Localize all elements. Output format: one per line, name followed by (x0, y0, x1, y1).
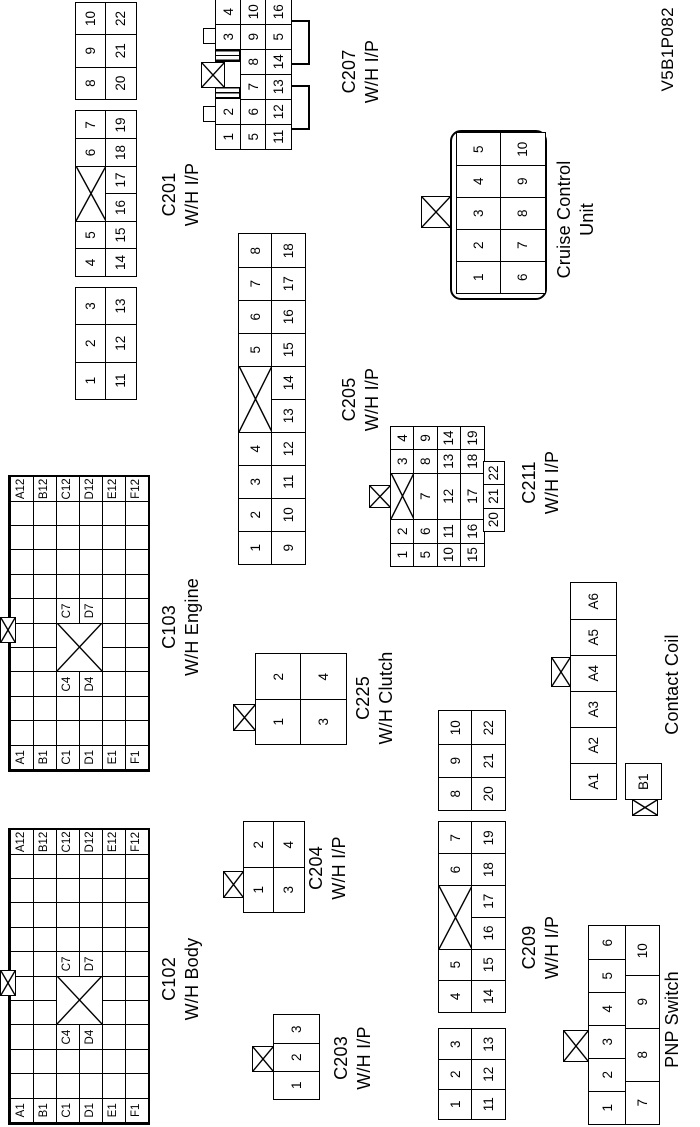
pin-cell: 12 (271, 431, 306, 466)
pin-cell (10, 696, 34, 721)
pin-cell: 5 (456, 132, 502, 166)
mount-hook (290, 85, 310, 130)
connector-c207: 1234567891011121314516 (215, 0, 290, 150)
pin-cell: 12 (437, 472, 462, 520)
pin-cell (102, 951, 126, 976)
pin-cell (10, 1000, 34, 1025)
pin-cell: 19 (105, 110, 137, 139)
pin-cell: 5 (265, 23, 292, 50)
pin-cell: 12 (105, 324, 137, 363)
pin-cell: 19 (471, 821, 506, 854)
pin-cell (33, 696, 57, 721)
pin-cell: 6 (500, 260, 546, 294)
pin-cell (125, 854, 149, 879)
pin-cell: D1 (79, 1098, 103, 1123)
pin-cell: C7 (56, 598, 80, 623)
cross-cell (56, 976, 103, 1026)
pin-cell: 11 (271, 464, 306, 499)
pin-cell (10, 1073, 34, 1098)
pin-cell: 21 (471, 743, 506, 778)
pin-cell (10, 549, 34, 574)
pin-cell (102, 1073, 126, 1098)
pin-cell: 3 (273, 1014, 320, 1044)
pin-cell (125, 671, 149, 696)
pin-cell (79, 549, 103, 574)
pin-cell: 8 (413, 449, 438, 474)
pin-cell: 4 (438, 980, 473, 1013)
pin-cell: 8 (240, 48, 267, 75)
pin-cell (56, 902, 80, 927)
pin-cell (102, 878, 126, 903)
pin-cell (79, 927, 103, 952)
pin-cell: 13 (471, 1028, 506, 1060)
pin-cell: 3 (390, 449, 415, 474)
pin-cell: C1 (56, 745, 80, 770)
pin-cell: 6 (438, 853, 473, 886)
pin-cell: 2 (438, 1058, 473, 1090)
pin-cell (33, 671, 57, 696)
connector-sub: W/H I/P (361, 322, 384, 477)
pin-cell (33, 927, 57, 952)
pin-cell (79, 1073, 103, 1098)
pin-cell: 2 (243, 821, 275, 868)
pin-cell: 17 (105, 165, 137, 194)
pin-cell: 8 (75, 66, 107, 100)
pin-cell (56, 1049, 80, 1074)
pin-cell: 2 (255, 653, 302, 700)
connector-sub: W/H Engine (181, 537, 204, 717)
pin-cell: 16 (265, 0, 292, 25)
pin-cell: 2 (238, 497, 273, 532)
pin-cell (10, 671, 34, 696)
pin-cell: C12 (56, 829, 80, 854)
pin-cell (79, 854, 103, 879)
pin-cell: 15 (460, 542, 485, 567)
connector-c203-label: C203 W/H I/P (330, 999, 376, 1117)
pin-cell: 1 (273, 1070, 320, 1100)
pin-cell (125, 549, 149, 574)
pin-cell (56, 696, 80, 721)
pin-cell: 20 (471, 776, 506, 811)
pin-cell: 8 (500, 196, 546, 230)
pin-cell: 7 (238, 266, 273, 301)
pin-cell: 9 (438, 743, 473, 778)
pin-cell: 10 (437, 542, 462, 567)
connector-cruise-label: Cruise Control Unit (553, 127, 599, 312)
pin-cell: 2 (588, 1057, 627, 1092)
connector-c209-label: C209 W/H I/P (518, 880, 564, 1015)
pin-cell (102, 671, 126, 696)
pin-cell: 17 (460, 472, 485, 520)
pin-cell (56, 720, 80, 745)
pin-cell: 9 (625, 974, 660, 1029)
pin-cell: 6 (238, 299, 273, 334)
pin-cell: D4 (79, 1024, 103, 1049)
pin-cell (33, 902, 57, 927)
connector-name: C102 (158, 889, 181, 1069)
pin-cell: 6 (75, 138, 107, 167)
pin-cell: 22 (483, 461, 505, 486)
pin-cell (33, 647, 57, 672)
keying-x-mark-cruise (421, 196, 451, 228)
pin-cell: 12 (471, 1058, 506, 1090)
pin-cell: 7 (413, 472, 438, 520)
pin-cell (56, 549, 80, 574)
pin-cell: 8 (238, 233, 273, 268)
connector-c207-label: C207 W/H I/P (338, 14, 384, 129)
pin-cell: 1 (456, 260, 502, 294)
pin-cell (10, 501, 34, 526)
pin-cell: A2 (570, 726, 617, 764)
pin-cell: 6 (240, 98, 267, 125)
connector-c225-label: C225 W/H Clutch (352, 637, 398, 759)
pin-cell (102, 647, 126, 672)
pin-cell (33, 951, 57, 976)
pin-cell (33, 1049, 57, 1074)
pin-cell: 22 (471, 710, 506, 745)
pin-cell: 5 (588, 958, 627, 993)
pin-cell: 16 (105, 193, 137, 222)
pin-cell: 13 (437, 449, 462, 474)
pin-cell (79, 696, 103, 721)
pin-cell (102, 1000, 126, 1025)
pin-cell: F12 (125, 829, 149, 854)
pin-cell (10, 878, 34, 903)
pin-cell: E12 (102, 829, 126, 854)
pin-cell: 5 (438, 948, 473, 981)
pin-cell: 3 (438, 1028, 473, 1060)
pin-cell: 13 (265, 73, 292, 100)
pin-cell (102, 976, 126, 1001)
pin-cell: 4 (273, 821, 305, 868)
pin-cell: A4 (570, 654, 617, 692)
pin-cell (56, 574, 80, 599)
pin-cell (102, 1024, 126, 1049)
cross-cell (438, 885, 473, 950)
pin-cell: 1 (255, 698, 302, 745)
pin-cell: A12 (10, 829, 34, 854)
connector-name: Contact Coil (661, 592, 684, 777)
pin-cell: 8 (625, 1027, 660, 1082)
pin-cell (33, 854, 57, 879)
pin-cell: 1 (243, 866, 275, 913)
pin-cell: 9 (240, 23, 267, 50)
connector-c201-label: C201 W/H I/P (158, 102, 204, 287)
pin-cell: A3 (570, 690, 617, 728)
pin-cell (33, 501, 57, 526)
pin-cell: 1 (438, 1088, 473, 1120)
pin-cell: 5 (413, 542, 438, 567)
pin-cell: 1 (390, 542, 415, 567)
pin-cell: B12 (33, 829, 57, 854)
pin-cell: 10 (271, 497, 306, 532)
connector-pnp-label: PNP Switch (661, 937, 684, 1102)
pin-cell: 21 (483, 484, 505, 509)
pin-cell (56, 525, 80, 550)
pin-cell: D12 (79, 476, 103, 501)
pin-cell: 11 (105, 361, 137, 400)
pin-cell (102, 549, 126, 574)
pin-cell (102, 902, 126, 927)
pin-cell: 6 (413, 519, 438, 544)
pin-cell (10, 927, 34, 952)
pin-cell: 9 (500, 164, 546, 198)
pin-cell (125, 501, 149, 526)
pin-cell: 12 (265, 98, 292, 125)
pin-cell: 20 (483, 507, 505, 532)
pin-cell: 14 (105, 248, 137, 277)
pin-cell: 18 (105, 138, 137, 167)
pin-cell (56, 878, 80, 903)
pin-cell: B1 (33, 745, 57, 770)
pin-cell: F12 (125, 476, 149, 501)
pin-cell (10, 525, 34, 550)
pin-cell (33, 976, 57, 1001)
pin-cell (33, 1073, 57, 1098)
pin-cell (102, 501, 126, 526)
keying-x-mark-contact-a (551, 657, 571, 687)
pin-cell (10, 574, 34, 599)
pin-cell: 7 (500, 228, 546, 262)
pin-cell (125, 902, 149, 927)
pin-cell: 18 (471, 853, 506, 886)
pin-cell: 4 (390, 426, 415, 451)
keying-x-mark-pnp (563, 1030, 589, 1062)
pin-cell (33, 720, 57, 745)
pin-cell: 15 (471, 948, 506, 981)
pin-cell (125, 598, 149, 623)
keying-x-mark-c204 (223, 871, 244, 898)
pin-cell: 4 (238, 431, 273, 466)
pin-cell: 22 (105, 2, 137, 36)
pin-cell: C4 (56, 1024, 80, 1049)
connector-sub: W/H I/P (328, 809, 351, 927)
pin-cell (125, 976, 149, 1001)
pin-cell: 11 (437, 519, 462, 544)
pin-cell (56, 854, 80, 879)
pin-cell: 7 (625, 1080, 660, 1125)
pin-cell: 13 (271, 398, 306, 433)
pin-cell (33, 1024, 57, 1049)
pin-cell (102, 623, 126, 648)
pin-cell (125, 720, 149, 745)
pin-cell: 15 (271, 332, 306, 367)
pin-cell: A1 (10, 1098, 34, 1123)
pin-cell: C12 (56, 476, 80, 501)
pin-cell: 21 (105, 34, 137, 68)
pin-cell: 4 (300, 653, 347, 700)
pin-cell (33, 549, 57, 574)
pin-cell (10, 647, 34, 672)
pin-cell: 2 (273, 1042, 320, 1072)
pin-cell (102, 598, 126, 623)
pin-cell: 17 (271, 266, 306, 301)
pin-cell: 17 (471, 885, 506, 918)
connector-name: Cruise Control (553, 127, 576, 312)
pin-cell (10, 1049, 34, 1074)
pin-cell (125, 951, 149, 976)
pin-cell (56, 927, 80, 952)
pin-cell: 3 (273, 866, 305, 913)
pin-cell (33, 878, 57, 903)
pin-cell: 4 (75, 248, 107, 277)
connector-sub: W/H Clutch (375, 637, 398, 759)
connector-sub: W/H I/P (541, 880, 564, 1015)
keying-x-mark-c225 (233, 704, 256, 731)
pin-cell (125, 927, 149, 952)
connector-sub: W/H I/P (353, 999, 376, 1117)
pin-cell: C4 (56, 671, 80, 696)
pin-cell: D12 (79, 829, 103, 854)
pin-cell: 11 (265, 123, 292, 150)
cross-cell (75, 165, 107, 222)
cross-cell (56, 623, 103, 673)
pin-cell: 10 (240, 0, 267, 25)
pin-cell: 6 (588, 925, 627, 960)
connector-sub: W/H I/P (541, 420, 564, 545)
pin-cell (125, 574, 149, 599)
pin-cell: 4 (588, 991, 627, 1026)
connector-c204-label: C204 W/H I/P (305, 809, 351, 927)
pin-cell: 14 (271, 365, 306, 400)
pin-cell (10, 1024, 34, 1049)
pin-cell (79, 878, 103, 903)
connector-name: C211 (518, 420, 541, 545)
connector-name: C209 (518, 880, 541, 1015)
pin-cell: E1 (102, 745, 126, 770)
pin-cell: 10 (75, 2, 107, 36)
keying-x-mark-c103 (0, 617, 16, 643)
pin-cell (56, 501, 80, 526)
pin-cell: B12 (33, 476, 57, 501)
pin-cell (102, 525, 126, 550)
pin-cell: 1 (238, 530, 273, 565)
connector-name: C225 (352, 637, 375, 759)
pin-cell: 20 (105, 66, 137, 100)
keying-x-mark-c203 (252, 1046, 274, 1072)
connector-name: C204 (305, 809, 328, 927)
connector-sub: W/H Body (181, 889, 204, 1069)
pin-cell: 1 (588, 1090, 627, 1125)
pin-cell (33, 623, 57, 648)
pin-cell (102, 720, 126, 745)
pin-cell: A1 (570, 762, 617, 800)
pin-cell: 5 (240, 123, 267, 150)
pin-cell (125, 878, 149, 903)
pin-cell: E12 (102, 476, 126, 501)
pin-cell (102, 1049, 126, 1074)
pin-cell: 1 (75, 361, 107, 400)
pin-cell: 1 (215, 123, 242, 150)
pin-cell: 3 (215, 23, 242, 50)
pin-cell (79, 902, 103, 927)
diagram-page: A1A12B1B12C1C4C7C12D1D4D7D12E1E12F1F12 C… (0, 0, 700, 1127)
pin-cell: 4 (215, 0, 242, 25)
mount-hook (290, 20, 310, 65)
pin-cell (79, 574, 103, 599)
pin-cell: D1 (79, 745, 103, 770)
pin-cell: 9 (75, 34, 107, 68)
pin-cell: 18 (460, 449, 485, 474)
pin-cell: 7 (240, 73, 267, 100)
pin-cell (125, 1073, 149, 1098)
pin-cell (102, 927, 126, 952)
pin-cell (125, 1024, 149, 1049)
connector-c205-label: C205 W/H I/P (338, 322, 384, 477)
pin-cell: 10 (625, 925, 660, 976)
pin-cell: C7 (56, 951, 80, 976)
pin-cell (79, 501, 103, 526)
pin-cell: 16 (271, 299, 306, 334)
connector-name: C103 (158, 537, 181, 717)
pin-cell: A5 (570, 618, 617, 656)
pin-cell: C1 (56, 1098, 80, 1123)
connector-c211-label: C211 W/H I/P (518, 420, 564, 545)
keying-x-mark-c207 (201, 62, 225, 88)
connector-name: PNP Switch (661, 937, 684, 1102)
pin-cell (33, 1000, 57, 1025)
keying-x-mark-contact-b (632, 799, 658, 816)
connector-name: C201 (158, 102, 181, 287)
pin-cell: 4 (456, 164, 502, 198)
pin-cell (10, 854, 34, 879)
pin-grid: A1A12B1B12C1C4C7C12D1D4D7D12E1E12F1F12 (8, 828, 150, 1125)
pin-cell: 19 (460, 426, 485, 451)
pin-cell (102, 696, 126, 721)
pin-cell: 8 (438, 776, 473, 811)
connector-sub: Unit (576, 127, 599, 312)
pin-cell: A12 (10, 476, 34, 501)
pin-cell: 3 (75, 287, 107, 326)
pin-cell: F1 (125, 745, 149, 770)
pin-cell: 3 (300, 698, 347, 745)
pin-cell: 3 (588, 1024, 627, 1059)
pin-cell: 2 (215, 98, 242, 125)
pin-cell (33, 525, 57, 550)
pin-cell (125, 1049, 149, 1074)
keying-x-mark-c211 (369, 485, 391, 508)
pin-cell: 2 (456, 228, 502, 262)
pin-cell (125, 696, 149, 721)
connector-sub: W/H I/P (181, 102, 204, 287)
pin-cell (56, 1073, 80, 1098)
connector-name: C207 (338, 14, 361, 129)
pin-cell: 10 (500, 132, 546, 166)
cross-cell (390, 472, 415, 520)
pin-cell: A6 (570, 582, 617, 620)
connector-name: C203 (330, 999, 353, 1117)
pin-cell (33, 574, 57, 599)
connector-cruise-control: 12345678910 (450, 130, 547, 300)
pin-cell: E1 (102, 1098, 126, 1123)
pin-cell: F1 (125, 1098, 149, 1123)
pin-cell (10, 902, 34, 927)
pin-cell: 2 (390, 519, 415, 544)
pin-cell: 5 (75, 220, 107, 249)
pin-cell: 16 (460, 519, 485, 544)
pin-cell (102, 574, 126, 599)
pin-cell: 18 (271, 233, 306, 268)
pin-cell: 3 (456, 196, 502, 230)
figure-code: V5B1P082 (658, 7, 678, 142)
pin-cell: 2 (75, 324, 107, 363)
connector-sub: W/H I/P (361, 14, 384, 129)
connector-name: C205 (338, 322, 361, 477)
pin-cell: A1 (10, 745, 34, 770)
cross-cell (238, 365, 273, 433)
pin-cell (125, 623, 149, 648)
connector-c103-label: C103 W/H Engine (158, 537, 204, 717)
